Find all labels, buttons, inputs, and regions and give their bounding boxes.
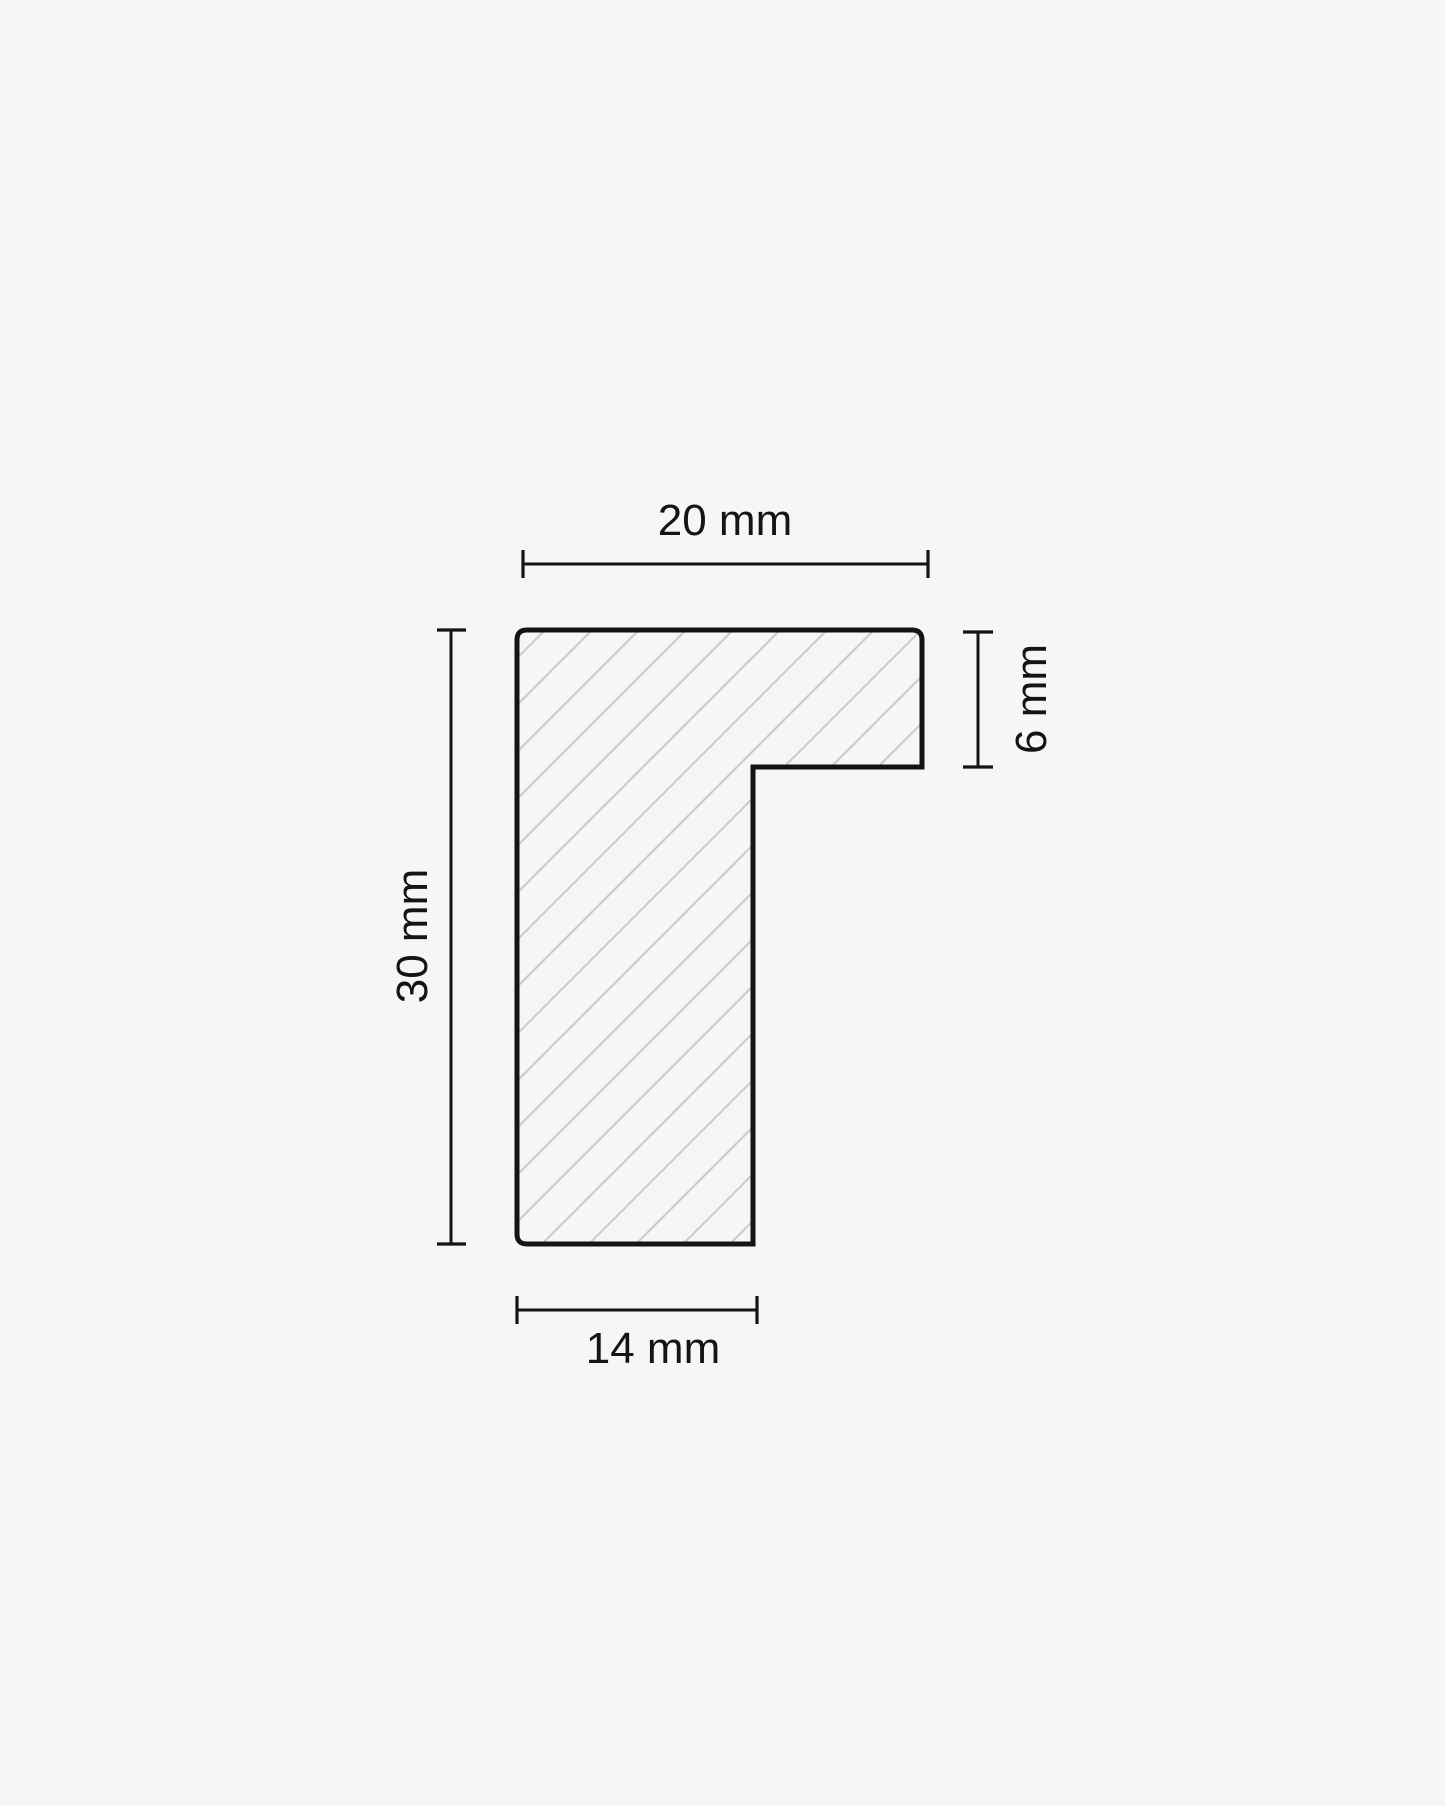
profile-shape bbox=[517, 630, 922, 1244]
dimension-label-base: 14 mm bbox=[586, 1324, 720, 1373]
dimension-label-height: 30 mm bbox=[388, 869, 437, 1003]
dimension-label-width: 20 mm bbox=[658, 496, 792, 545]
dimension-label-lip: 6 mm bbox=[1007, 644, 1056, 754]
frame-profile-diagram: 20 mm 30 mm 6 mm 14 mm bbox=[0, 0, 1445, 1806]
profile-cross-section bbox=[517, 630, 922, 1244]
dimension-top-width: 20 mm bbox=[523, 496, 928, 578]
dimension-right-lip: 6 mm bbox=[963, 632, 1056, 767]
cross-section-canvas: 20 mm 30 mm 6 mm 14 mm bbox=[0, 0, 1445, 1806]
dimension-bottom-base: 14 mm bbox=[517, 1296, 757, 1373]
dimension-left-height: 30 mm bbox=[388, 630, 466, 1244]
